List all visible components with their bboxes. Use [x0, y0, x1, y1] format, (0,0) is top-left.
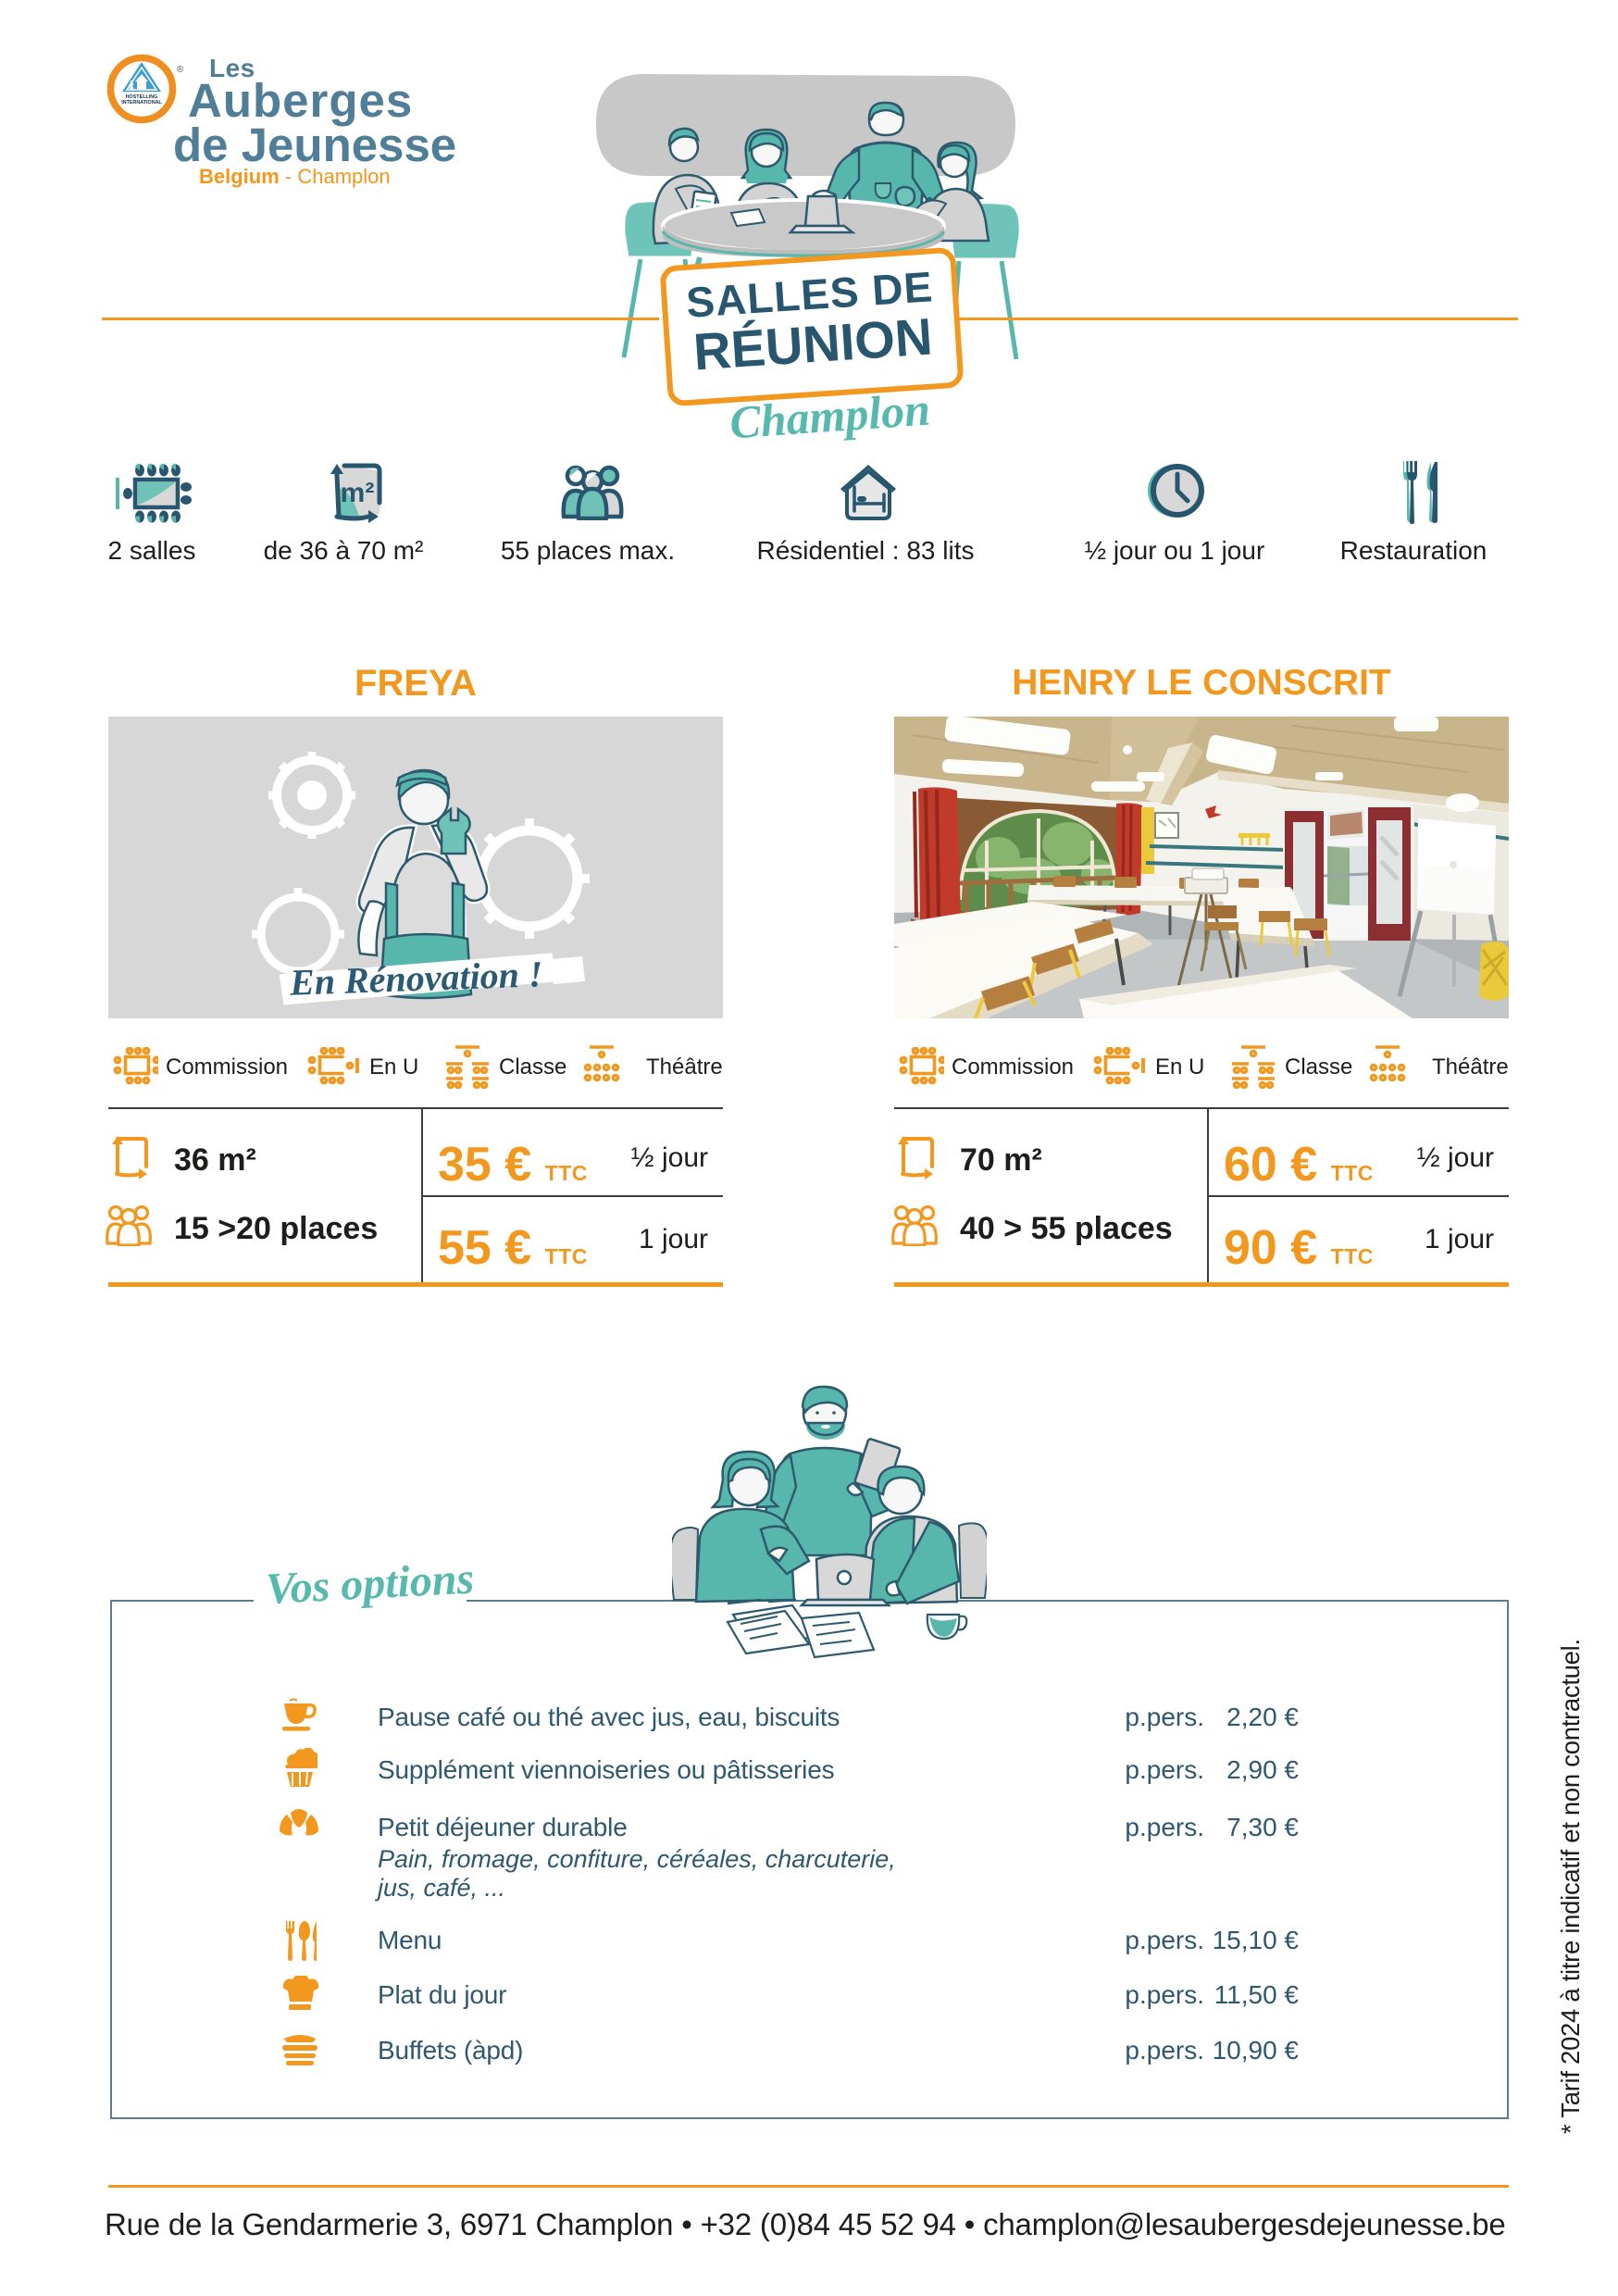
svg-text:m²: m²: [341, 478, 375, 508]
svg-text:®: ®: [177, 65, 184, 75]
svg-text:Vos options: Vos options: [268, 1554, 475, 1614]
svg-text:Champlon: Champlon: [728, 383, 931, 449]
svg-text:INTERNATIONAL: INTERNATIONAL: [121, 100, 162, 106]
svg-text:En Rénovation !: En Rénovation !: [288, 953, 543, 1004]
